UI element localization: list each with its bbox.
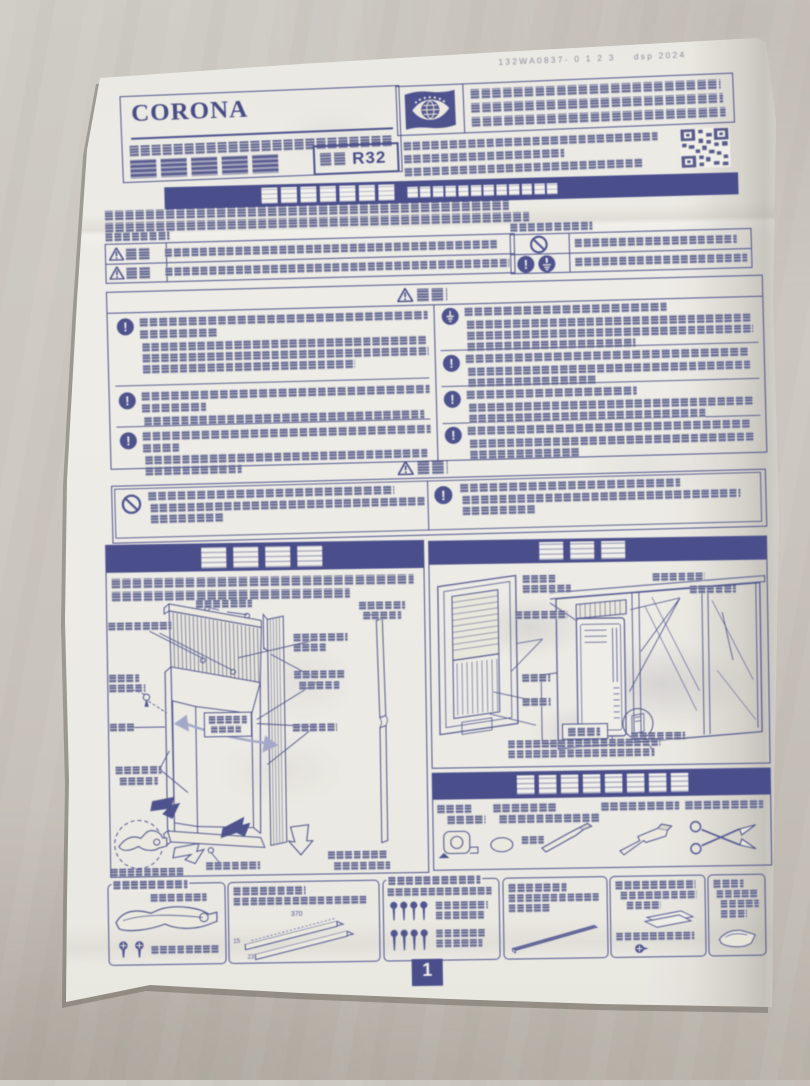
svg-text:15: 15	[233, 939, 240, 945]
svg-text:370: 370	[291, 911, 303, 918]
svg-text:23: 23	[248, 955, 255, 961]
